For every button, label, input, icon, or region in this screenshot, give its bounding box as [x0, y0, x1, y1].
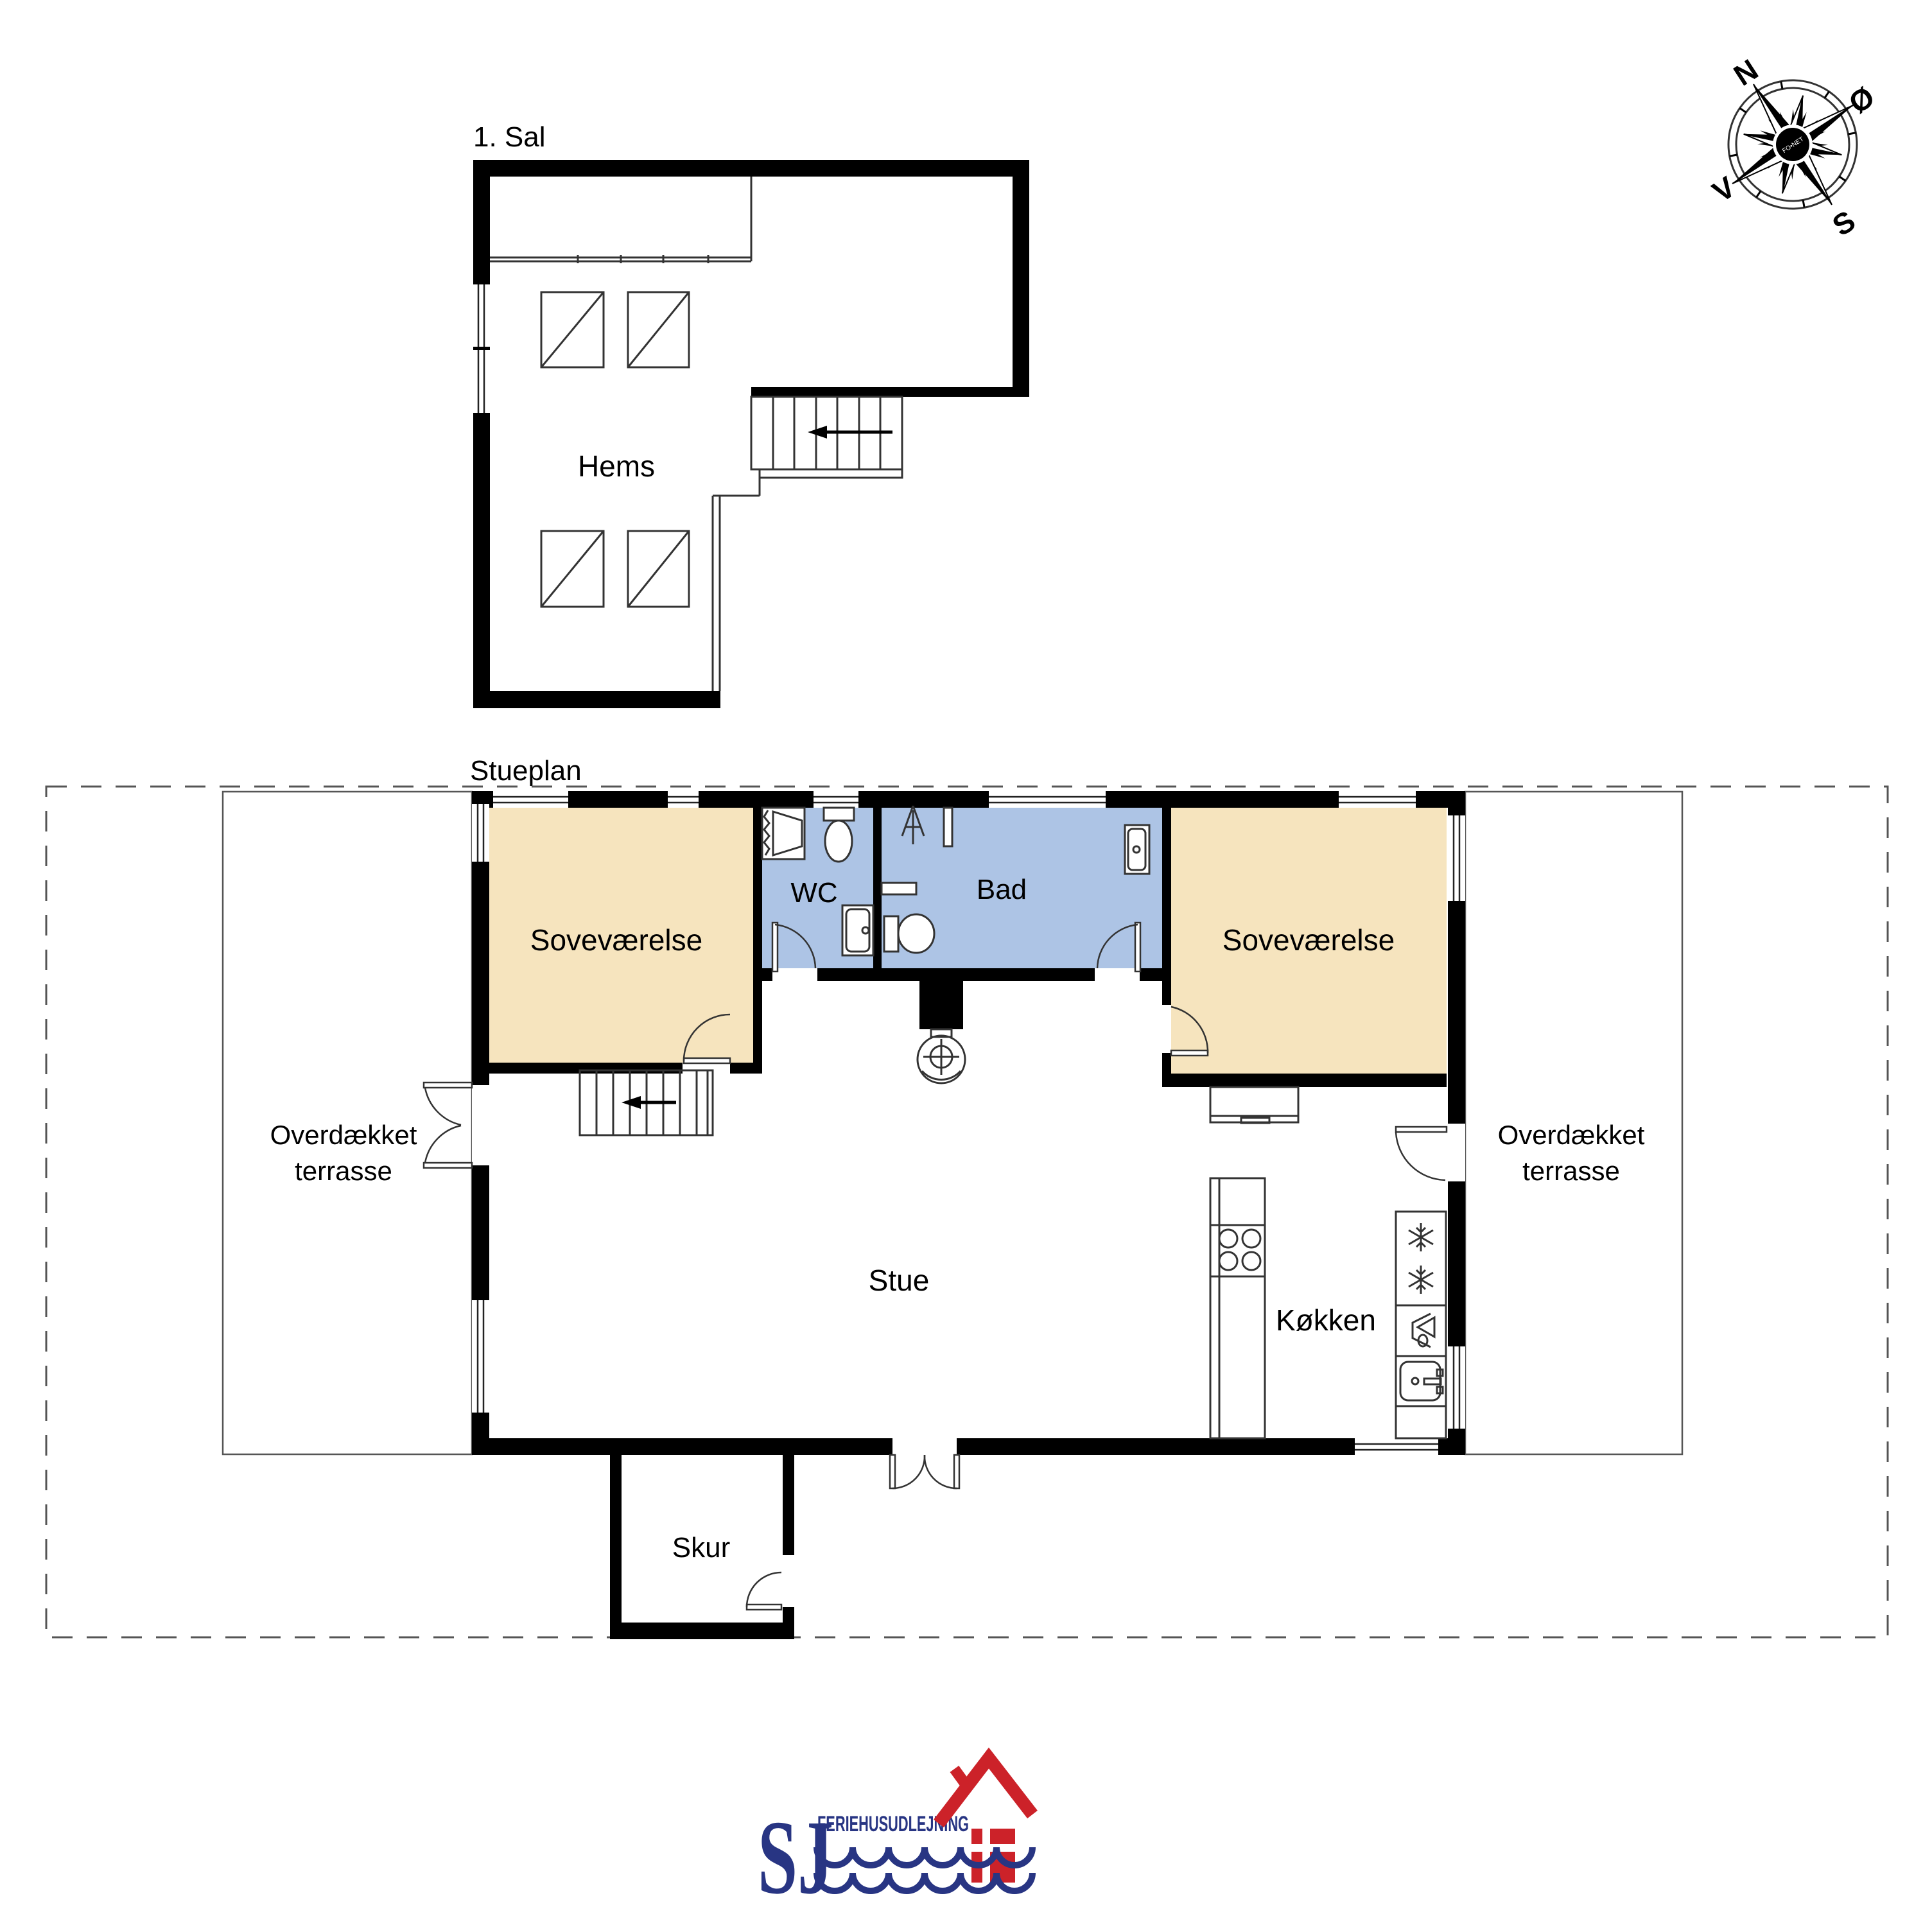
shower-screen [944, 808, 952, 846]
counter-top [1210, 1087, 1298, 1123]
sink-icon [842, 905, 873, 955]
sink-icon [1125, 825, 1149, 874]
room-label-shed: Skur [672, 1532, 730, 1563]
shelf [882, 883, 916, 894]
room-label-living: Stue [869, 1264, 930, 1297]
chimney-block [919, 980, 963, 1029]
terrace-left-label-line1: Overdækket [270, 1120, 417, 1150]
upper-floor-title: 1. Sal [473, 121, 546, 153]
cooktop-island [1210, 1178, 1265, 1438]
room-label-kitchen: Køkken [1276, 1303, 1376, 1337]
terrace-left-label-line2: terrasse [295, 1156, 392, 1186]
room-label-bedroom-left: Soveværelse [530, 923, 702, 957]
toilet-icon [824, 808, 854, 862]
floor-plan-canvas: 1. Sal [0, 0, 1932, 1932]
room-label-wc: WC [790, 877, 837, 909]
terrace-right-label-line2: terrasse [1522, 1156, 1620, 1186]
shower-icon [762, 808, 805, 859]
ground-floor-title: Stueplan [470, 755, 582, 787]
terrace-right-label-line1: Overdækket [1498, 1120, 1645, 1150]
room-label-bath: Bad [977, 874, 1027, 905]
room-label-bedroom-right: Soveværelse [1223, 923, 1395, 957]
toilet-icon [884, 914, 934, 953]
appliance-column [1396, 1212, 1446, 1438]
room-label-hems: Hems [578, 449, 655, 483]
